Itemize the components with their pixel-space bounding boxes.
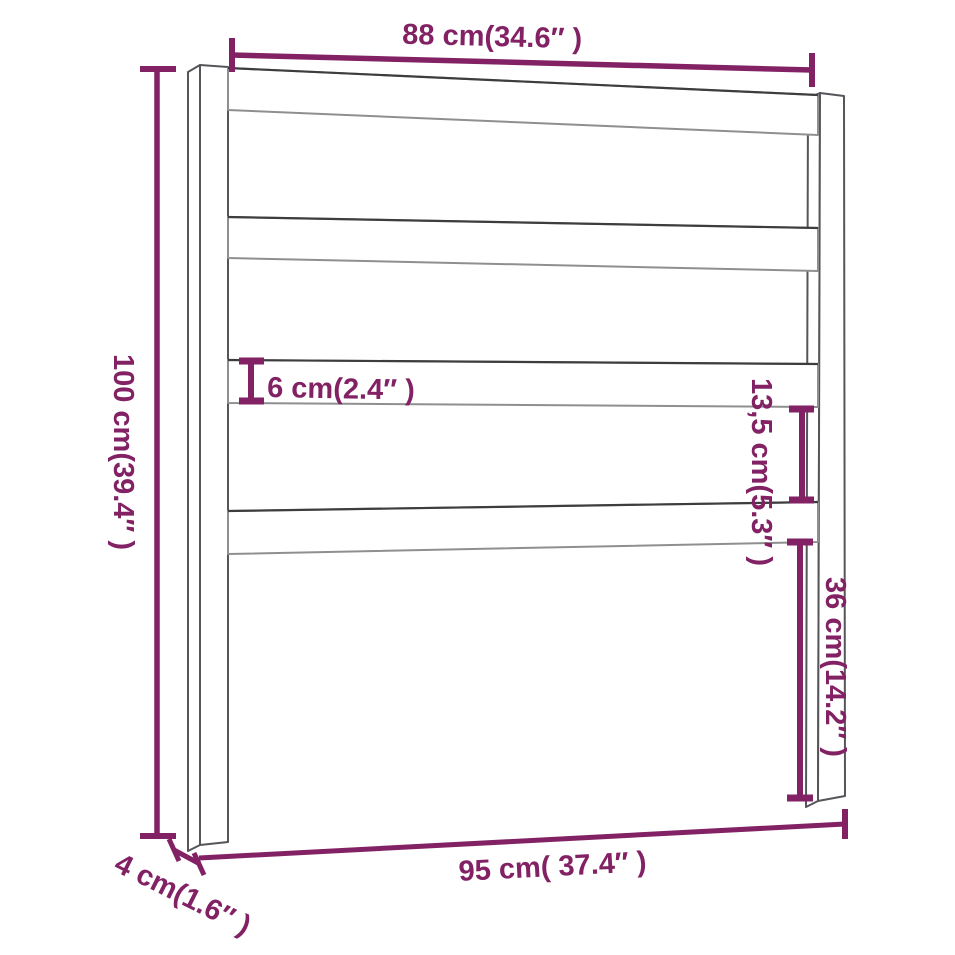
- dim-label-post-depth: 4 cm(1.6″ ): [109, 848, 255, 943]
- left-post-front-face: [200, 65, 228, 845]
- left-post-side-face: [188, 65, 200, 851]
- dim-label-bottom-width: 95 cm( 37.4″ ): [458, 846, 647, 888]
- dim-label-slat-thickness: 6 cm(2.4″ ): [267, 372, 415, 407]
- slat-1: [228, 68, 818, 135]
- diagram-canvas: 88 cm(34.6″ ) 100 cm(39.4″ ) 6 cm(2.4″ )…: [0, 0, 955, 955]
- dimension-lines: [140, 38, 845, 875]
- slat-2: [228, 217, 818, 271]
- dim-label-top-width: 88 cm(34.6″ ): [402, 19, 583, 56]
- dim-label-slat-gap: 13,5 cm(5.3″ ): [745, 378, 777, 566]
- dim-label-lower-height: 36 cm(14.2″ ): [819, 577, 851, 757]
- dim-top-width-line: [232, 55, 812, 70]
- dim-label-left-height: 100 cm(39.4″ ): [107, 354, 139, 550]
- headboard-dimension-diagram: 88 cm(34.6″ ) 100 cm(39.4″ ) 6 cm(2.4″ )…: [0, 0, 955, 955]
